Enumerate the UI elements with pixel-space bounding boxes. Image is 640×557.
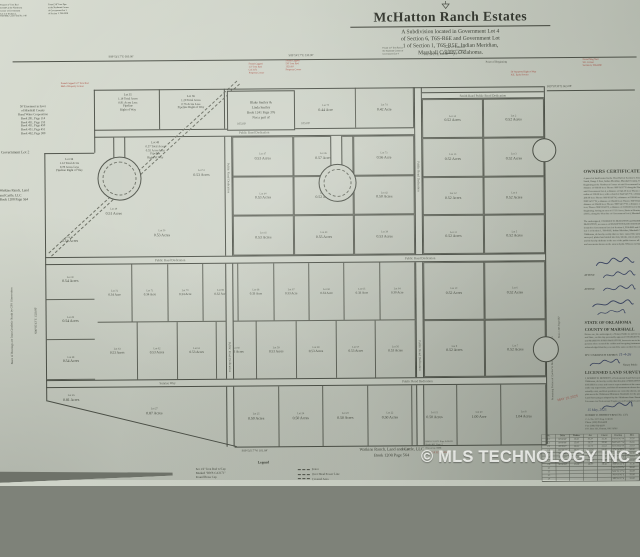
lot-acreage: 0.33 Acre (250, 292, 262, 296)
lot-cell: Lot 60.52 Acres (484, 261, 545, 319)
lot-acreage: 0.53 Acres (376, 234, 392, 238)
lot-cell: Lot 130.52 Acres (422, 137, 483, 176)
lot-36: Lot 361.20 Total Acres0.76 Acres LessPip… (161, 95, 221, 110)
lot-cell: Lot 730.56 Acre (354, 135, 415, 175)
legend-item: Found Brass Cap (196, 475, 256, 479)
lot-cell: Lot 40.52 Acres (484, 176, 545, 215)
street-label: Public Road Dedication (418, 340, 422, 370)
street-label: Public Road Dedication (239, 130, 269, 134)
street-label: Public Road Dedication (226, 163, 230, 193)
lot-cell: Lot 650.33 Acre (344, 263, 380, 320)
surveyor-signature (601, 402, 633, 412)
note-line: Government Lot 1 (445, 52, 487, 55)
lot-acreage: 0.53 Acres (150, 350, 165, 354)
county-heading: COUNTY OF MARSHALL (585, 327, 635, 332)
lot-acreage: 0.52 Acres (506, 156, 522, 160)
surveyor-text: I, ROBERT D. BENNETT, a Professional Lan… (585, 376, 640, 402)
lot-cell: Lot 220.50 Acres (368, 385, 413, 445)
lot-cell: Lot 570.53 Acres (336, 321, 376, 378)
notary-signature (589, 359, 621, 368)
lot-acreage: 0.53 Acres (255, 196, 271, 200)
boundary-bulb-2 (533, 336, 559, 362)
lot-cell: Lot 700.34 Acre (168, 264, 204, 321)
page-title: McHatton Ranch Estates (350, 8, 550, 28)
commission-label: MY COMMISSION EXPIRES: (585, 354, 618, 358)
point-of-beginning-label: Point of Beginning (486, 61, 507, 64)
lot-acreage: 1.04 Acres (515, 414, 531, 418)
street-smith-road: Smith Road Public Road Dedication (422, 91, 544, 99)
dimension-label: S89°54'17"E 660.00' (109, 54, 134, 58)
lot-acreage: 0.52 Acres (505, 118, 521, 122)
street-label: Public Road Dedication (228, 342, 232, 372)
section-line (13, 57, 637, 63)
lot-cell: Lot 230.50 Acres (323, 386, 368, 446)
lot-cell: Lot 720.34 Acre (97, 264, 133, 321)
owner-signature (594, 256, 636, 270)
dimension-label: 105.00' (301, 121, 310, 125)
lot-26: Lot 260.81 Acres (53, 394, 89, 402)
lot-35: Lot 351.14 Total Acres0.81 Acres LessPip… (99, 93, 157, 112)
legal-line: (2011), along the West line of Governmen… (584, 212, 640, 216)
lot-cell: Lot 710.34 Acre (133, 264, 169, 321)
red-note-left-edge: Found Capped 1/2" Iron RodHalf of Proper… (61, 82, 111, 89)
lot-cell: Lot 400.55 Acres (293, 215, 354, 255)
owners-certificate-heading: OWNERS CERTIFICATE & DEDICATION (583, 168, 640, 174)
red-note-line: Property Corner (249, 72, 283, 75)
lot-acreage: 0.57 Acres (315, 155, 331, 159)
lot-line: Pipeline Right of Way (161, 106, 221, 110)
lot-acreage: 0.53 Acres (348, 349, 363, 353)
lot-cell: Lot 390.53 Acres (354, 215, 415, 255)
lot-cell: Lot 640.30 Acre (380, 262, 416, 319)
lot-divider (159, 89, 160, 129)
lot-acreage: 0.33 Acre (285, 291, 297, 295)
lot-48: Lot 480.57 Total Acres0.55 Acres LessPip… (129, 141, 181, 160)
lot-acreage: 0.44 Acre (318, 108, 333, 112)
note-line: Book 462, Page 380 (5, 132, 61, 136)
government-lot-label: Government Lot 2 (1, 150, 29, 154)
dimension-label: 105.00' (237, 122, 246, 126)
lot-line: Pipeline Right of Way (46, 169, 92, 173)
lot-block-top-right: Lot 750.44 AcreLot 740.42 Acre (297, 87, 414, 128)
lot-acreage: 0.34 Acre (108, 293, 120, 297)
remaining-portion-book: Book 1263 Page 687 (557, 278, 561, 338)
lot-acreage: 0.53 Acres (154, 233, 170, 237)
lot-cell: Lot 610.53 Acres (177, 322, 217, 379)
lot-acreage: 0.54 Acres (62, 279, 78, 283)
lot-block-west: Lot 310.54 AcresLot 300.54 AcresLot 290.… (46, 220, 95, 380)
legend-left-column: Set 1/2" Iron Rod w/CapMarked "RWS CA317… (196, 468, 256, 480)
lot-acreage: 0.50 Acres (248, 416, 264, 420)
mls-watermark: © MLS TECHNOLOGY INC 2026 (421, 448, 640, 467)
lot-acreage: 0.53 Acres (189, 350, 204, 354)
lot-acreage: 0.81 Acres (63, 397, 79, 401)
lot-cell: Lot 50.52 Acres (484, 214, 545, 253)
legend-row: Covered Area (298, 476, 368, 481)
easement-note: 50' Easement in favorof Marshall CountyR… (5, 105, 61, 137)
lot-cell: Lot 740.42 Acre (355, 87, 414, 127)
lot-cell: Lot 600.53 Acres (217, 322, 257, 379)
dedication-text: The undersigned, CHARLES W. McHATTON and… (584, 219, 640, 245)
lot-cell: Lot 660.33 Acre (309, 263, 345, 320)
street-label: Public Road Dedication (155, 258, 185, 262)
lot-acreage: 0.50 Acres (293, 416, 309, 420)
lot-block-east-lower: Lot 100.52 AcresLot 60.52 AcresLot 90.52… (423, 261, 546, 377)
curve-table-row: L4S89°54'17"E50.00' (542, 477, 639, 481)
notary-line: acknowledged that they executed the same… (585, 345, 640, 349)
street-label: Smith Road Public Road Dedication (460, 93, 506, 97)
lot-acreage: 0.52 Acres (445, 157, 461, 161)
lot-cell: Lot 140.52 Acres (422, 99, 483, 138)
corner-note-nw: Found 1/2" Iron RodLS1357 at the Northwe… (0, 4, 44, 19)
owner-signature (602, 270, 636, 281)
handwritten-name (597, 309, 627, 317)
surveyor-heading: LICENSED LAND SURVEYOR (585, 369, 640, 374)
lot-cell: Lot 240.50 Acres (279, 386, 324, 446)
lot-acreage: 0.53 Acres (193, 172, 209, 176)
cul-de-sac-west (97, 156, 141, 200)
red-note-found-corner: Found Capped5/8" Iron Rod1320.00'Propert… (286, 59, 320, 72)
plat-boundary-step (44, 153, 94, 154)
subnote-a: Found 1/2" Iron Rod atthe Southeast Corn… (382, 47, 424, 56)
lot-line: Right of Way (129, 156, 181, 160)
lot-acreage: 0.56 Acre (377, 155, 392, 159)
commission-date-handwritten: 11-4-26 (619, 352, 631, 357)
street-label: Sunrise Way (159, 381, 175, 385)
lot-band-upper: Lot 720.34 AcreLot 710.34 AcreLot 700.34… (97, 262, 415, 321)
lot-cell: Lot 670.33 Acre (274, 263, 310, 320)
legend-heading: Legend (258, 460, 269, 464)
red-note-right-of-way: 50' Statutory Right of WayN.E. Early Ser… (511, 70, 555, 77)
lot-cell: Lot 201.00 Acre (457, 385, 502, 445)
lot-acreage: 0.55 Acres (316, 235, 332, 239)
legal-text: A parcel of land located in the West Hal… (584, 176, 640, 215)
red-note-line: Property Corner (286, 68, 320, 71)
street-label: Public Road Dedication (405, 256, 435, 260)
legend-symbol (298, 474, 310, 475)
lot-cell: Lot 280.54 Acres (47, 340, 95, 380)
lot-acreage: 0.53 Acres (309, 349, 324, 353)
lot-acreage: 0.52 Acres (506, 195, 522, 199)
lot-block-south: Lot 250.50 AcresLot 240.50 AcresLot 230.… (234, 384, 546, 446)
lot-34: Lot 341.12 Total Acres0.78 Acres LessPip… (46, 158, 92, 173)
street-label: Public Road Dedication (402, 379, 432, 383)
lot-acreage: 1.00 Acre (472, 414, 487, 418)
lot-acreage: 0.52 Acres (445, 234, 461, 238)
lot-acreage: 0.34 Acre (144, 293, 156, 297)
lot-cell: Lot 680.33 Acre (238, 263, 274, 320)
attest-label: ATTEST: (584, 288, 595, 292)
filed-stamp: MAY 15 2025 (557, 394, 578, 402)
lot-acreage: 0.53 Acres (269, 350, 284, 354)
lot-50: Lot 500.53 Acres (146, 229, 178, 237)
corner-note-nw2: Found 3/8" Iron Pipeat the Northeast Cor… (48, 4, 90, 16)
lot-acreage: 0.52 Acres (446, 348, 462, 352)
lot-cell: Lot 120.52 Acres (423, 176, 484, 215)
lot-49: Lot 490.51 Acres (98, 207, 130, 215)
lot-acreage: 0.52 Acres (507, 290, 523, 294)
legend-symbol (298, 469, 310, 470)
dimension-label: S89°54'17"W 101.84' (242, 448, 268, 452)
dimension-label: S89°58'30"E 663.08' (547, 84, 572, 88)
lot-acreage: 0.50 Acres (426, 415, 442, 419)
lot-acreage: 0.52 Acres (446, 290, 462, 294)
west-boundary-dimension: N00°05'43"E 1320.00' (34, 244, 39, 334)
lot-block-east-upper: Lot 140.52 AcresLot 20.52 AcresLot 130.5… (422, 98, 545, 254)
owner-line: Book 1208 Page 564 (0, 197, 44, 202)
red-note-mag-nail: Found Mag NailS.E. CornerSection 6, T6S-… (583, 58, 627, 68)
dimension-label: S89°54'17"E 330.00' (289, 53, 314, 57)
lot-51: Lot 510.53 Acres (185, 169, 217, 177)
lot-acreage: 0.52 Acres (444, 118, 460, 122)
remaining-portion-label: Remaining Portion of Charles W. McHatton… (550, 238, 555, 400)
lot-acreage: 0.52 Acres (445, 196, 461, 200)
contact-line: P.O. Box 231, Durant, OK 74702 (585, 427, 640, 431)
owner-signature (602, 284, 636, 295)
attest-label: ATTEST: (584, 274, 595, 278)
red-note-line: Half of Property Corner (61, 85, 111, 89)
cul-de-sac-center (318, 164, 356, 202)
lot-acreage: 0.50 Acres (337, 415, 353, 419)
lot-acreage: 0.53 Acres (110, 351, 125, 355)
lot-cell: Lot 20.52 Acres (483, 98, 544, 137)
lot-cell: Lot 250.50 Acres (234, 386, 279, 446)
watkins-owner-label-left: Watkins Ranch, Landand Cattle, LLCBook 1… (0, 188, 44, 202)
lot-acreage: 0.30 Acre (391, 291, 403, 295)
lot-cell: Lot 410.53 Acres (233, 216, 294, 256)
lot-cell: Lot 110.52 Acres (423, 215, 484, 254)
state-heading: STATE OF OKLAHOMA (585, 320, 632, 325)
note-line: of Section 1, T6S-R5E (48, 12, 90, 15)
lot-cell: Lot 620.53 Acres (137, 322, 177, 379)
lot-acreage: 0.50 Acres (382, 415, 398, 419)
lot-acreage: 0.51 Acres (106, 211, 122, 215)
lot-cell: Lot 290.54 Acres (46, 300, 94, 340)
dedication-line: and easements shown on the annexed plat.… (584, 242, 640, 246)
dimension-line (547, 90, 635, 91)
benchmark-icon (441, 1, 450, 9)
subnote-b: Found 1/2" Iron Rod atthe Southwest Corn… (444, 47, 486, 56)
lot-line: Right of Way (99, 108, 157, 112)
lot-cell: Lot 630.53 Acres (98, 322, 138, 379)
plat-boundary-west-upper (94, 90, 95, 153)
legend-right-column: FenceOver Head Power LineCovered Area (298, 467, 368, 482)
lot-acreage: 0.53 Acres (255, 235, 271, 239)
lot-cell: Lot 580.53 Acres (296, 321, 336, 378)
lot-band-lower: Lot 630.53 AcresLot 620.53 AcresLot 610.… (98, 319, 416, 379)
lot-cell: Lot 440.53 Acres (232, 176, 293, 216)
lot-27: Lot 270.87 Acres (129, 407, 179, 415)
plat-document: Found 1/2" Iron RodLS1357 at the Northwe… (0, 0, 640, 483)
lot-acreage: 0.50 Acres (376, 195, 392, 199)
lot-acreage: 0.54 Acres (62, 319, 78, 323)
notary-public-label: Notary Public (623, 364, 638, 367)
boundary-bulb-1 (532, 138, 556, 162)
street-label: Public Road Dedication (416, 161, 420, 191)
dimension-label: S89°54'17"E 165.00' (424, 52, 449, 56)
lot-acreage: 0.42 Acre (377, 107, 392, 111)
dimension-label: 996.00' (402, 447, 411, 451)
red-note-found-corner: Found Capped1/2" Iron RodCA 3171Property… (249, 62, 283, 75)
basis-of-bearings-label: Basis of Bearings are from Geodetic Nort… (10, 240, 15, 364)
legend-label: Covered Area (312, 477, 329, 482)
notary-text: Before me, the undersigned, a Notary Pub… (585, 332, 640, 349)
lot-cell: Lot 560.53 Acres (376, 320, 416, 377)
exclusion-line: Not a part of (252, 115, 269, 120)
lot-acreage: 0.53 Acres (388, 349, 403, 353)
lot-acreage: 0.54 Acres (63, 359, 79, 363)
lot-acreage: 0.87 Acres (146, 411, 162, 415)
red-note-line: N.E. Early Service (511, 73, 555, 76)
lot-cell: Lot 300.54 Acres (46, 260, 94, 300)
lot-acreage: 0.52 Acres (507, 347, 523, 351)
lot-acreage: 0.33 Acre (320, 291, 332, 295)
note-line: T6S-R5E, CCR Filed No. 140 (0, 16, 44, 19)
lot-cell: Lot 590.53 Acres (257, 321, 297, 378)
lot-acreage: 0.53 Acres (255, 156, 271, 160)
lot-acreage: 0.34 Acre (179, 292, 191, 296)
lot-cell: Lot 420.50 Acres (354, 175, 415, 215)
lot-cell: Lot 81.04 Acres (502, 384, 547, 444)
note-line: Government Lot 4 (383, 53, 425, 56)
lot-cell: Lot 470.53 Acres (232, 136, 293, 176)
contact-text: C.A. No. 3171 Exp. 6-30-26Phone (580) 92… (585, 417, 640, 430)
lot-cell: Lot 90.52 Acres (424, 319, 485, 377)
lot-acreage: 0.52 Acres (506, 234, 522, 238)
lot-cell: Lot 100.52 Acres (423, 262, 484, 320)
red-note-line: Section 6, T6S-R6E (583, 64, 627, 67)
lot-acreage: 0.33 Acre (356, 291, 368, 295)
